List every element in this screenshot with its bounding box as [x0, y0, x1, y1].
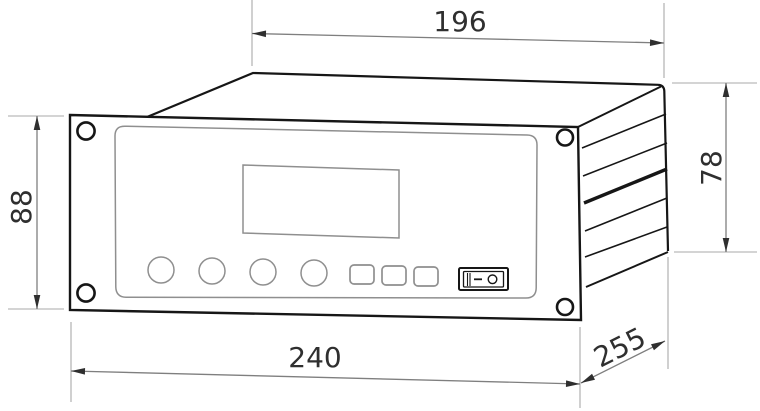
dimensional-drawing: 196 88 78 240 255 [0, 0, 760, 411]
dimension-label-right-height: 78 [695, 150, 728, 186]
dimension-label-depth: 255 [588, 321, 651, 374]
dimension-bottom-width: 240 [71, 322, 580, 408]
technical-drawing-canvas: 196 88 78 240 255 [0, 0, 760, 411]
dimension-right-height: 78 [672, 83, 757, 252]
dimension-left-height: 88 [5, 116, 64, 309]
dimension-label-left-height: 88 [5, 189, 38, 225]
dimension-top-width: 196 [252, 0, 664, 78]
dimension-label-bottom-width: 240 [288, 341, 341, 374]
dimension-label-top-width: 196 [433, 5, 486, 38]
front-panel [70, 115, 581, 320]
